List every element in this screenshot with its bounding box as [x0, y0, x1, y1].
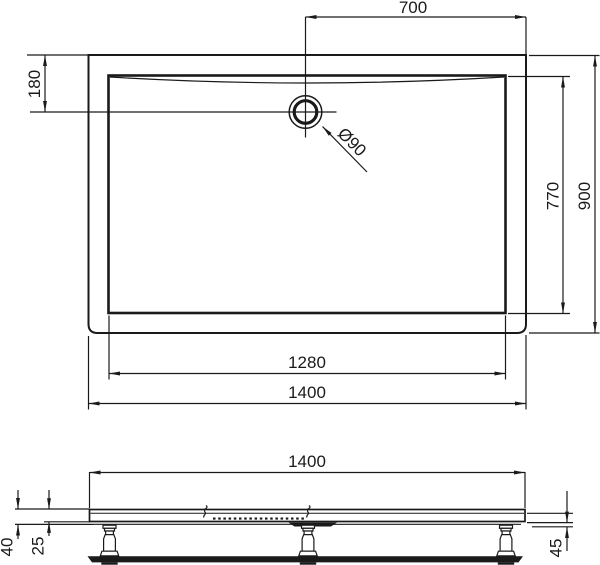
dim-1280-label: 1280	[288, 353, 326, 372]
base-plate-pad-middle	[300, 562, 316, 564]
foot-body	[302, 535, 314, 552]
dim-40: 40	[0, 490, 18, 556]
dim-1400-plan-label: 1400	[288, 383, 326, 402]
foot-left	[100, 525, 118, 556]
dim-1400-side: 1400	[90, 452, 526, 508]
drain-diameter-label: Ø90	[334, 124, 370, 160]
dim-700-label: 700	[399, 0, 427, 17]
technical-drawing-page: 700 180 Ø90 770 900	[0, 0, 600, 565]
base-plate-pad-left	[101, 562, 117, 564]
dim-45: 45	[527, 491, 573, 557]
foot-base	[100, 551, 118, 556]
foot-right	[497, 525, 515, 556]
foot-body	[500, 535, 512, 552]
side-view: 1400	[0, 452, 573, 565]
shower-tray-drawing: 700 180 Ø90 770 900	[0, 0, 600, 565]
foot-base	[299, 551, 317, 556]
dim-180-label: 180	[25, 70, 44, 98]
dim-700: 700	[306, 0, 527, 55]
tray-floor-slope-curve	[110, 77, 504, 83]
foot-middle	[299, 525, 317, 556]
drain-diameter-callout: Ø90	[323, 124, 370, 172]
dim-1400-side-label: 1400	[288, 452, 326, 471]
dim-1400-plan: 1400	[89, 335, 527, 410]
dim-25-label: 25	[29, 537, 48, 556]
foot-base	[497, 551, 515, 556]
dim-1280: 1280	[109, 316, 506, 380]
dim-770-label: 770	[544, 182, 563, 210]
dim-40-label: 40	[0, 538, 17, 557]
tray-inner-outline	[109, 76, 506, 314]
dim-180: 180	[25, 55, 88, 112]
base-plate	[88, 556, 524, 562]
base-plate-pad-right	[498, 562, 514, 564]
dim-900-label: 900	[575, 182, 594, 210]
foot-body	[104, 535, 116, 552]
dim-25: 25	[29, 490, 50, 555]
top-view: 700 180 Ø90 770 900	[25, 0, 600, 410]
dim-770: 770	[508, 77, 570, 314]
dim-45-label: 45	[547, 539, 566, 558]
dim-900: 900	[529, 56, 600, 334]
tray-outer-outline	[89, 55, 527, 333]
